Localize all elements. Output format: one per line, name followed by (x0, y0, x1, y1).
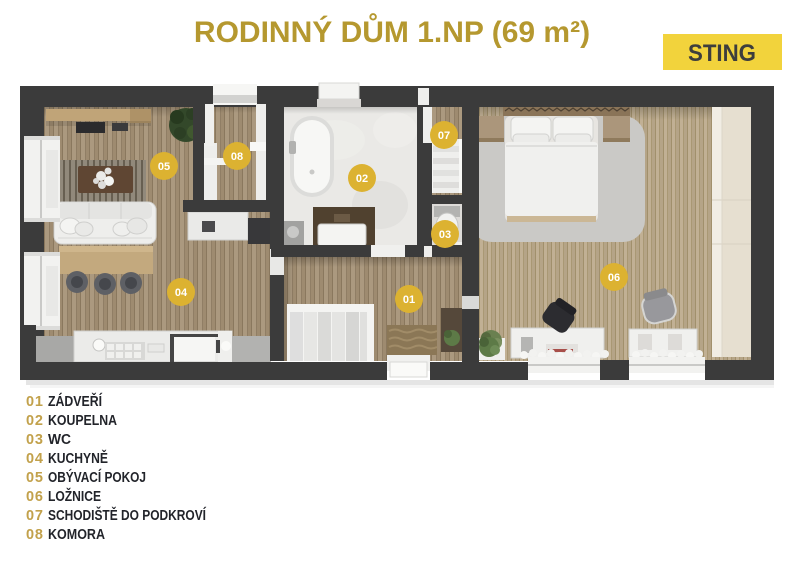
svg-text:KOMORA: KOMORA (48, 527, 105, 543)
svg-text:STING: STING (688, 40, 756, 67)
svg-text:04: 04 (26, 451, 43, 467)
svg-text:04: 04 (175, 287, 188, 299)
svg-text:03: 03 (439, 229, 451, 241)
svg-text:RODINNÝ DŮM 1.NP (69 m²): RODINNÝ DŮM 1.NP (69 m²) (194, 13, 590, 49)
svg-text:07: 07 (26, 508, 43, 524)
svg-text:01: 01 (26, 394, 43, 410)
svg-text:SCHODIŠTĚ DO PODKROVÍ: SCHODIŠTĚ DO PODKROVÍ (48, 506, 207, 524)
svg-text:08: 08 (231, 151, 243, 163)
svg-text:WC: WC (48, 432, 71, 448)
svg-text:05: 05 (26, 470, 43, 486)
svg-text:ZÁDVEŘÍ: ZÁDVEŘÍ (48, 392, 103, 410)
svg-text:05: 05 (158, 161, 170, 173)
svg-text:KOUPELNA: KOUPELNA (48, 413, 117, 429)
svg-text:01: 01 (403, 294, 415, 306)
svg-text:08: 08 (26, 527, 43, 543)
svg-text:06: 06 (608, 272, 620, 284)
svg-text:02: 02 (26, 413, 43, 429)
svg-text:KUCHYNĚ: KUCHYNĚ (48, 449, 108, 467)
svg-text:LOŽNICE: LOŽNICE (48, 487, 101, 505)
svg-text:OBÝVACÍ POKOJ: OBÝVACÍ POKOJ (48, 468, 146, 486)
svg-text:07: 07 (438, 130, 450, 142)
svg-text:06: 06 (26, 489, 43, 505)
svg-text:02: 02 (356, 173, 368, 185)
svg-text:03: 03 (26, 432, 43, 448)
